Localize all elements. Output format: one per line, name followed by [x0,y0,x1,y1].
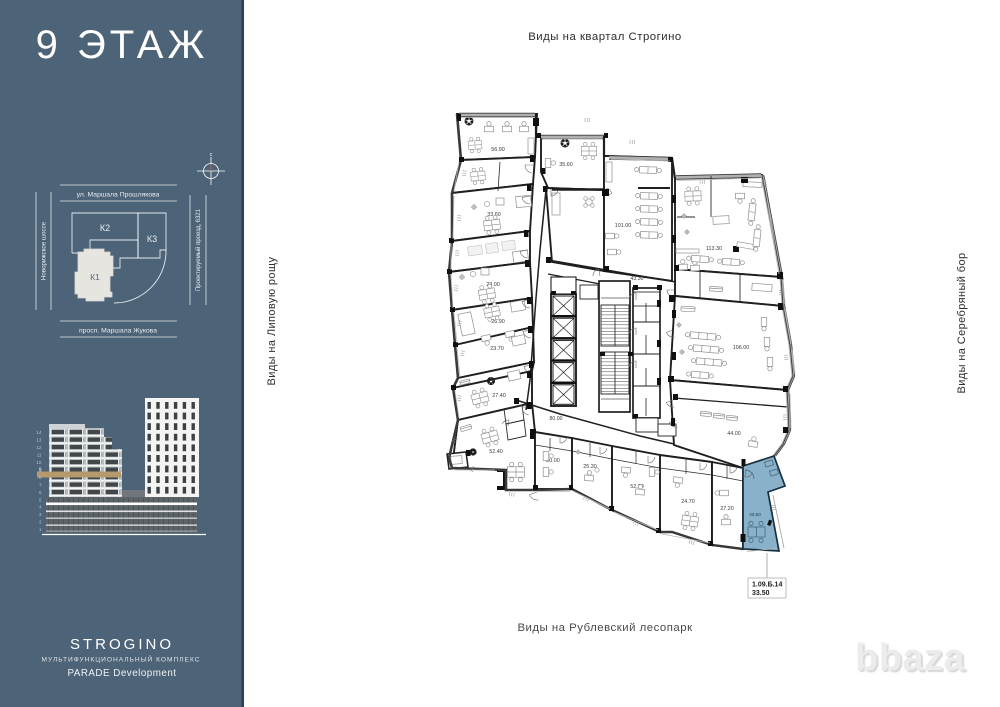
svg-text:14: 14 [36,430,42,435]
svg-text:6: 6 [39,490,42,495]
svg-text:44.00: 44.00 [727,431,741,437]
svg-text:1: 1 [39,527,42,532]
svg-text:43.30: 43.30 [631,276,644,282]
svg-text:3: 3 [39,512,42,517]
svg-text:10: 10 [36,460,42,465]
svg-text:12: 12 [36,445,42,450]
svg-text:STROGINO: STROGINO [70,636,174,653]
svg-text:просп. Маршала Жукова: просп. Маршала Жукова [79,328,157,335]
svg-text:5: 5 [39,497,42,502]
svg-text:7: 7 [39,482,42,487]
svg-text:Виды на Рублевский лесопарк: Виды на Рублевский лесопарк [517,622,693,634]
svg-text:с: с [210,152,213,158]
svg-text:К1: К1 [90,272,100,282]
svg-text:33.50: 33.50 [749,512,761,517]
svg-text:52.40: 52.40 [489,449,503,455]
svg-text:PARADE Development: PARADE Development [67,668,176,679]
svg-text:11: 11 [37,453,42,458]
svg-text:8: 8 [39,475,42,480]
svg-text:МУЛЬТИФУНКЦИОНАЛЬНЫЙ КОМПЛЕКС: МУЛЬТИФУНКЦИОНАЛЬНЫЙ КОМПЛЕКС [42,655,201,664]
svg-text:33.50: 33.50 [752,590,770,597]
svg-text:К2: К2 [100,223,110,233]
svg-text:Виды на Липовую рощу: Виды на Липовую рощу [266,256,278,385]
svg-text:26.90: 26.90 [491,319,505,325]
svg-text:ул. Маршала Прошлякова: ул. Маршала Прошлякова [77,192,160,199]
svg-text:9: 9 [39,467,42,473]
svg-text:27.20: 27.20 [720,506,734,512]
svg-text:56.90: 56.90 [491,147,505,153]
svg-text:35.60: 35.60 [559,162,573,168]
svg-text:113.30: 113.30 [706,246,722,252]
svg-text:Проектируемый проезд, 6321: Проектируемый проезд, 6321 [195,208,202,291]
svg-text:13: 13 [36,438,42,443]
svg-text:80.00: 80.00 [550,416,563,422]
svg-text:27.40: 27.40 [492,393,506,399]
svg-text:Новорижское шоссе: Новорижское шоссе [41,221,48,280]
svg-text:23.70: 23.70 [490,346,504,352]
svg-text:106.00: 106.00 [733,345,750,351]
svg-text:1.09.Б.14: 1.09.Б.14 [752,582,782,589]
svg-text:2: 2 [39,520,42,525]
svg-text:bbaza: bbaza [855,637,966,679]
svg-text:К3: К3 [147,234,157,244]
svg-text:9 ЭТАЖ: 9 ЭТАЖ [36,23,209,67]
svg-text:4: 4 [39,505,42,510]
svg-text:Виды на Серебряный бор: Виды на Серебряный бор [956,252,968,393]
svg-text:101.00: 101.00 [615,223,632,229]
svg-text:Виды на квартал Строгино: Виды на квартал Строгино [528,31,682,43]
svg-text:24.70: 24.70 [681,499,695,505]
